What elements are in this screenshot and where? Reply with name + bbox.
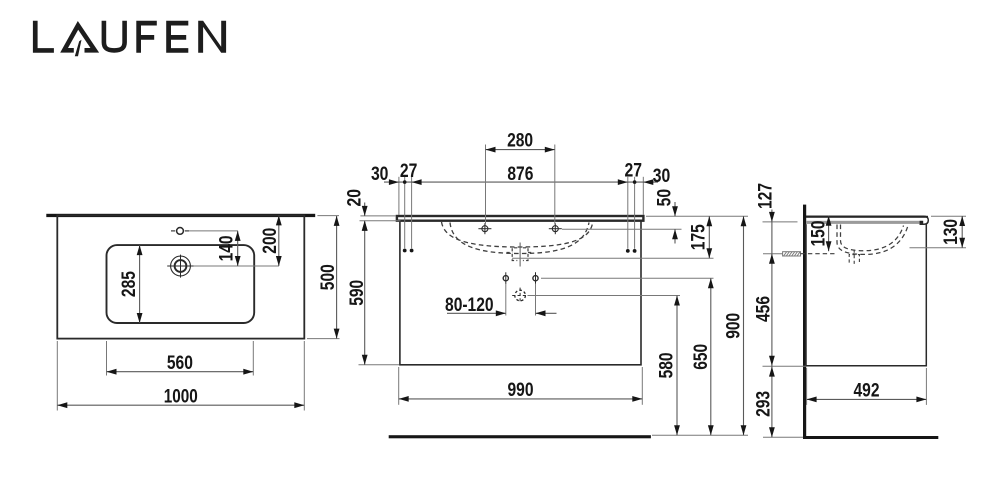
svg-text:175: 175 bbox=[689, 224, 710, 250]
svg-text:80-120: 80-120 bbox=[445, 295, 494, 316]
svg-text:900: 900 bbox=[724, 313, 745, 339]
svg-text:280: 280 bbox=[507, 131, 533, 152]
svg-text:50: 50 bbox=[654, 189, 675, 207]
svg-text:1000: 1000 bbox=[164, 386, 198, 407]
svg-text:492: 492 bbox=[854, 381, 880, 402]
svg-text:876: 876 bbox=[507, 164, 533, 185]
svg-text:140: 140 bbox=[217, 235, 238, 261]
svg-text:150: 150 bbox=[808, 221, 829, 247]
svg-text:990: 990 bbox=[508, 380, 534, 401]
svg-text:30: 30 bbox=[653, 166, 671, 187]
svg-text:30: 30 bbox=[371, 164, 389, 185]
svg-text:27: 27 bbox=[625, 160, 643, 181]
svg-text:130: 130 bbox=[941, 219, 962, 245]
svg-text:20: 20 bbox=[345, 189, 366, 207]
svg-text:200: 200 bbox=[260, 228, 281, 254]
svg-text:560: 560 bbox=[167, 353, 193, 374]
svg-text:650: 650 bbox=[691, 344, 712, 370]
svg-text:580: 580 bbox=[656, 352, 677, 378]
svg-text:456: 456 bbox=[753, 296, 774, 322]
svg-text:500: 500 bbox=[318, 264, 339, 290]
svg-text:27: 27 bbox=[400, 161, 418, 182]
svg-text:293: 293 bbox=[753, 391, 774, 417]
svg-text:285: 285 bbox=[119, 271, 140, 297]
svg-text:127: 127 bbox=[756, 183, 777, 209]
svg-text:590: 590 bbox=[347, 280, 368, 306]
